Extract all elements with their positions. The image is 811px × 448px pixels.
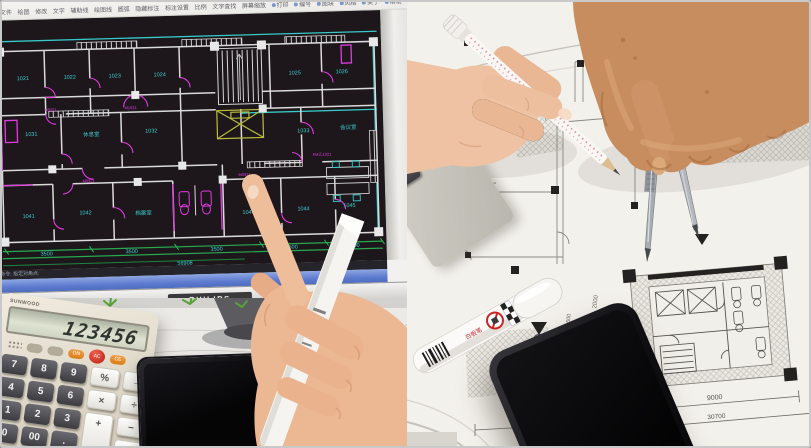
fist-with-compass bbox=[573, 2, 811, 175]
pointing-hand bbox=[2, 2, 407, 448]
thumbnail bbox=[652, 157, 666, 175]
left-photo-cad-monitor: 文件绘图修改文字辅助线绘图线圆弧隐藏标注标注设置比例文字查找屏幕缩放打印编号图块… bbox=[2, 2, 407, 448]
photo-collage: 文件绘图修改文字辅助线绘图线圆弧隐藏标注标注设置比例文字查找屏幕缩放打印编号图块… bbox=[0, 0, 811, 448]
right-photo-drafting: 9000 30700 3400 2000 1500 014 bbox=[407, 2, 811, 448]
drafting-hands bbox=[407, 2, 811, 448]
